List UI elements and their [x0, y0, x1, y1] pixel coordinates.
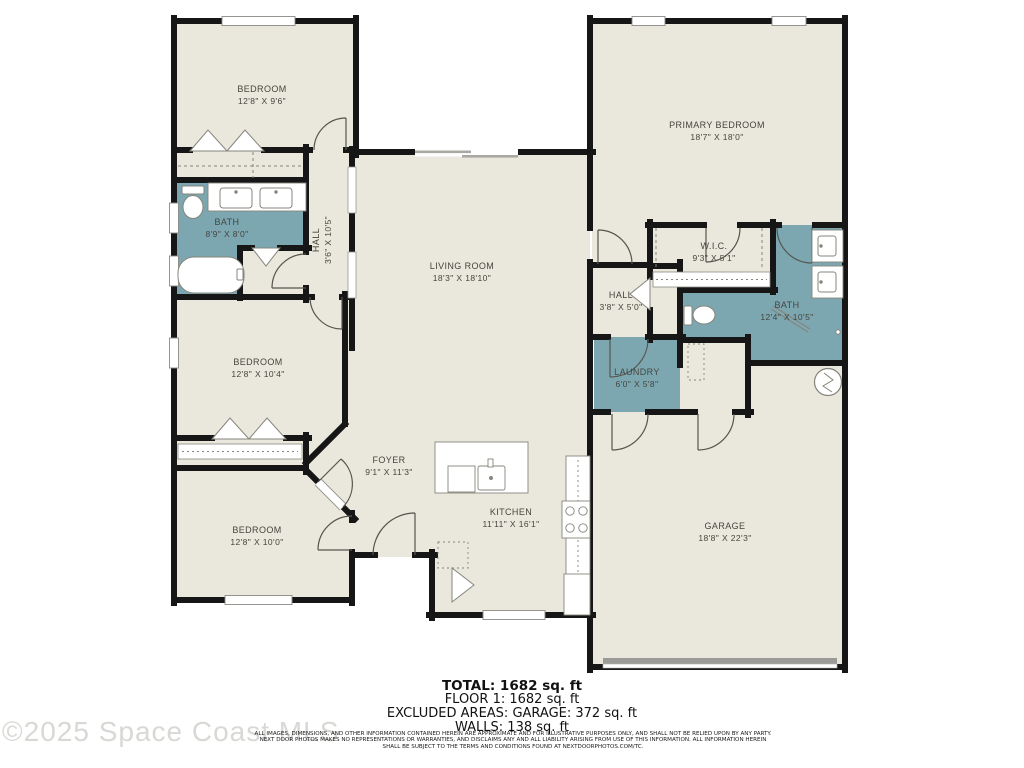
window-bedroom-bottom [225, 596, 292, 605]
room-label-garage: GARAGE 18'8" X 22'3" [698, 520, 751, 544]
sliding-door-panel-2 [462, 155, 518, 158]
island-faucet [488, 459, 493, 467]
faucet-dot-4 [820, 281, 822, 283]
window-bath-left-1 [170, 203, 179, 233]
room-label-foyer: FOYER 9'1" X 11'3" [365, 454, 412, 478]
room-label-kitchen: KITCHEN 11'11" X 16'1" [482, 506, 539, 530]
faucet-dot-1 [235, 191, 237, 193]
opening-hall-1 [348, 167, 356, 213]
room-label-bedroom-bottom: BEDROOM 12'8" X 10'0" [230, 524, 283, 548]
sink-drain-dot [490, 477, 493, 480]
toilet-bowl-primary [693, 306, 715, 324]
summary-total: TOTAL: 1682 sq. ft [0, 679, 1024, 693]
opening-hall-2 [348, 252, 356, 298]
disclaimer-text: ALL IMAGES, DIMENSIONS, AND OTHER INFORM… [248, 731, 778, 750]
sliding-door-panel-1 [415, 151, 471, 154]
tub-faucet [237, 269, 243, 280]
room-label-bath-left: BATH 8'9" X 8'0" [206, 216, 249, 240]
refrigerator [564, 574, 590, 615]
vestibule-floor [680, 340, 748, 412]
toilet-tank-primary [684, 306, 692, 325]
faucet-dot-3 [820, 245, 822, 247]
floor-plan-drawing [0, 0, 1024, 768]
floor-plan-page: BEDROOM 12'8" X 9'6" BATH 8'9" X 8'0" HA… [0, 0, 1024, 768]
window-bedroom-mid [170, 338, 179, 368]
window-kitchen [483, 611, 545, 620]
summary-floor: FLOOR 1: 1682 sq. ft [0, 693, 1024, 707]
disclaimer-line-3: SHALL BE SUBJECT TO THE TERMS AND CONDIT… [248, 744, 778, 750]
faucet-dot-2 [275, 191, 277, 193]
room-label-primary: PRIMARY BEDROOM 18'7" X 18'0" [669, 119, 765, 143]
bathtub [178, 257, 244, 293]
room-label-wic: W.I.C. 9'3" X 5'1" [693, 240, 736, 264]
toilet-tank-left [182, 186, 204, 194]
window-bedroom-top [222, 17, 295, 26]
room-label-bedroom-top: BEDROOM 12'8" X 9'6" [237, 83, 286, 107]
island-cabinet [448, 466, 475, 492]
room-label-bedroom-mid: BEDROOM 12'8" X 10'4" [231, 356, 284, 380]
disclaimer-line-2: NEXT DOOR PHOTOS MAKES NO REPRESENTATION… [248, 737, 778, 743]
living-kitchen-floor [352, 152, 590, 615]
garage-door-track [603, 664, 837, 668]
window-primary-1 [632, 17, 665, 26]
window-primary-2 [772, 17, 806, 26]
shower-head [836, 330, 840, 334]
room-label-laundry: LAUNDRY 6'0" X 5'8" [614, 366, 660, 390]
room-label-bath-primary: BATH 12'4" X 10'5" [760, 299, 813, 323]
room-label-living: LIVING ROOM 18'3" X 18'10" [430, 260, 494, 284]
garage-overhead-door [603, 658, 837, 664]
toilet-bowl-left [183, 196, 203, 219]
stove [562, 501, 590, 538]
water-heater [815, 369, 842, 396]
room-label-hall-right: HALL 3'8" X 5'0" [600, 289, 643, 313]
closet-top-floor [174, 150, 306, 180]
room-label-hall-left: HALL 3'6" X 10'5" [310, 216, 334, 264]
window-bath-left-2 [170, 256, 179, 286]
